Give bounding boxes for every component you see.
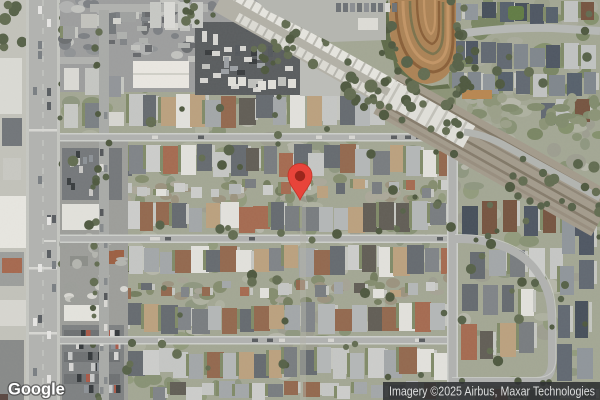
svg-text:Google: Google bbox=[8, 381, 65, 399]
svg-text:Imagery ©2025 Airbus, Maxar Te: Imagery ©2025 Airbus, Maxar Technologies bbox=[389, 385, 595, 399]
